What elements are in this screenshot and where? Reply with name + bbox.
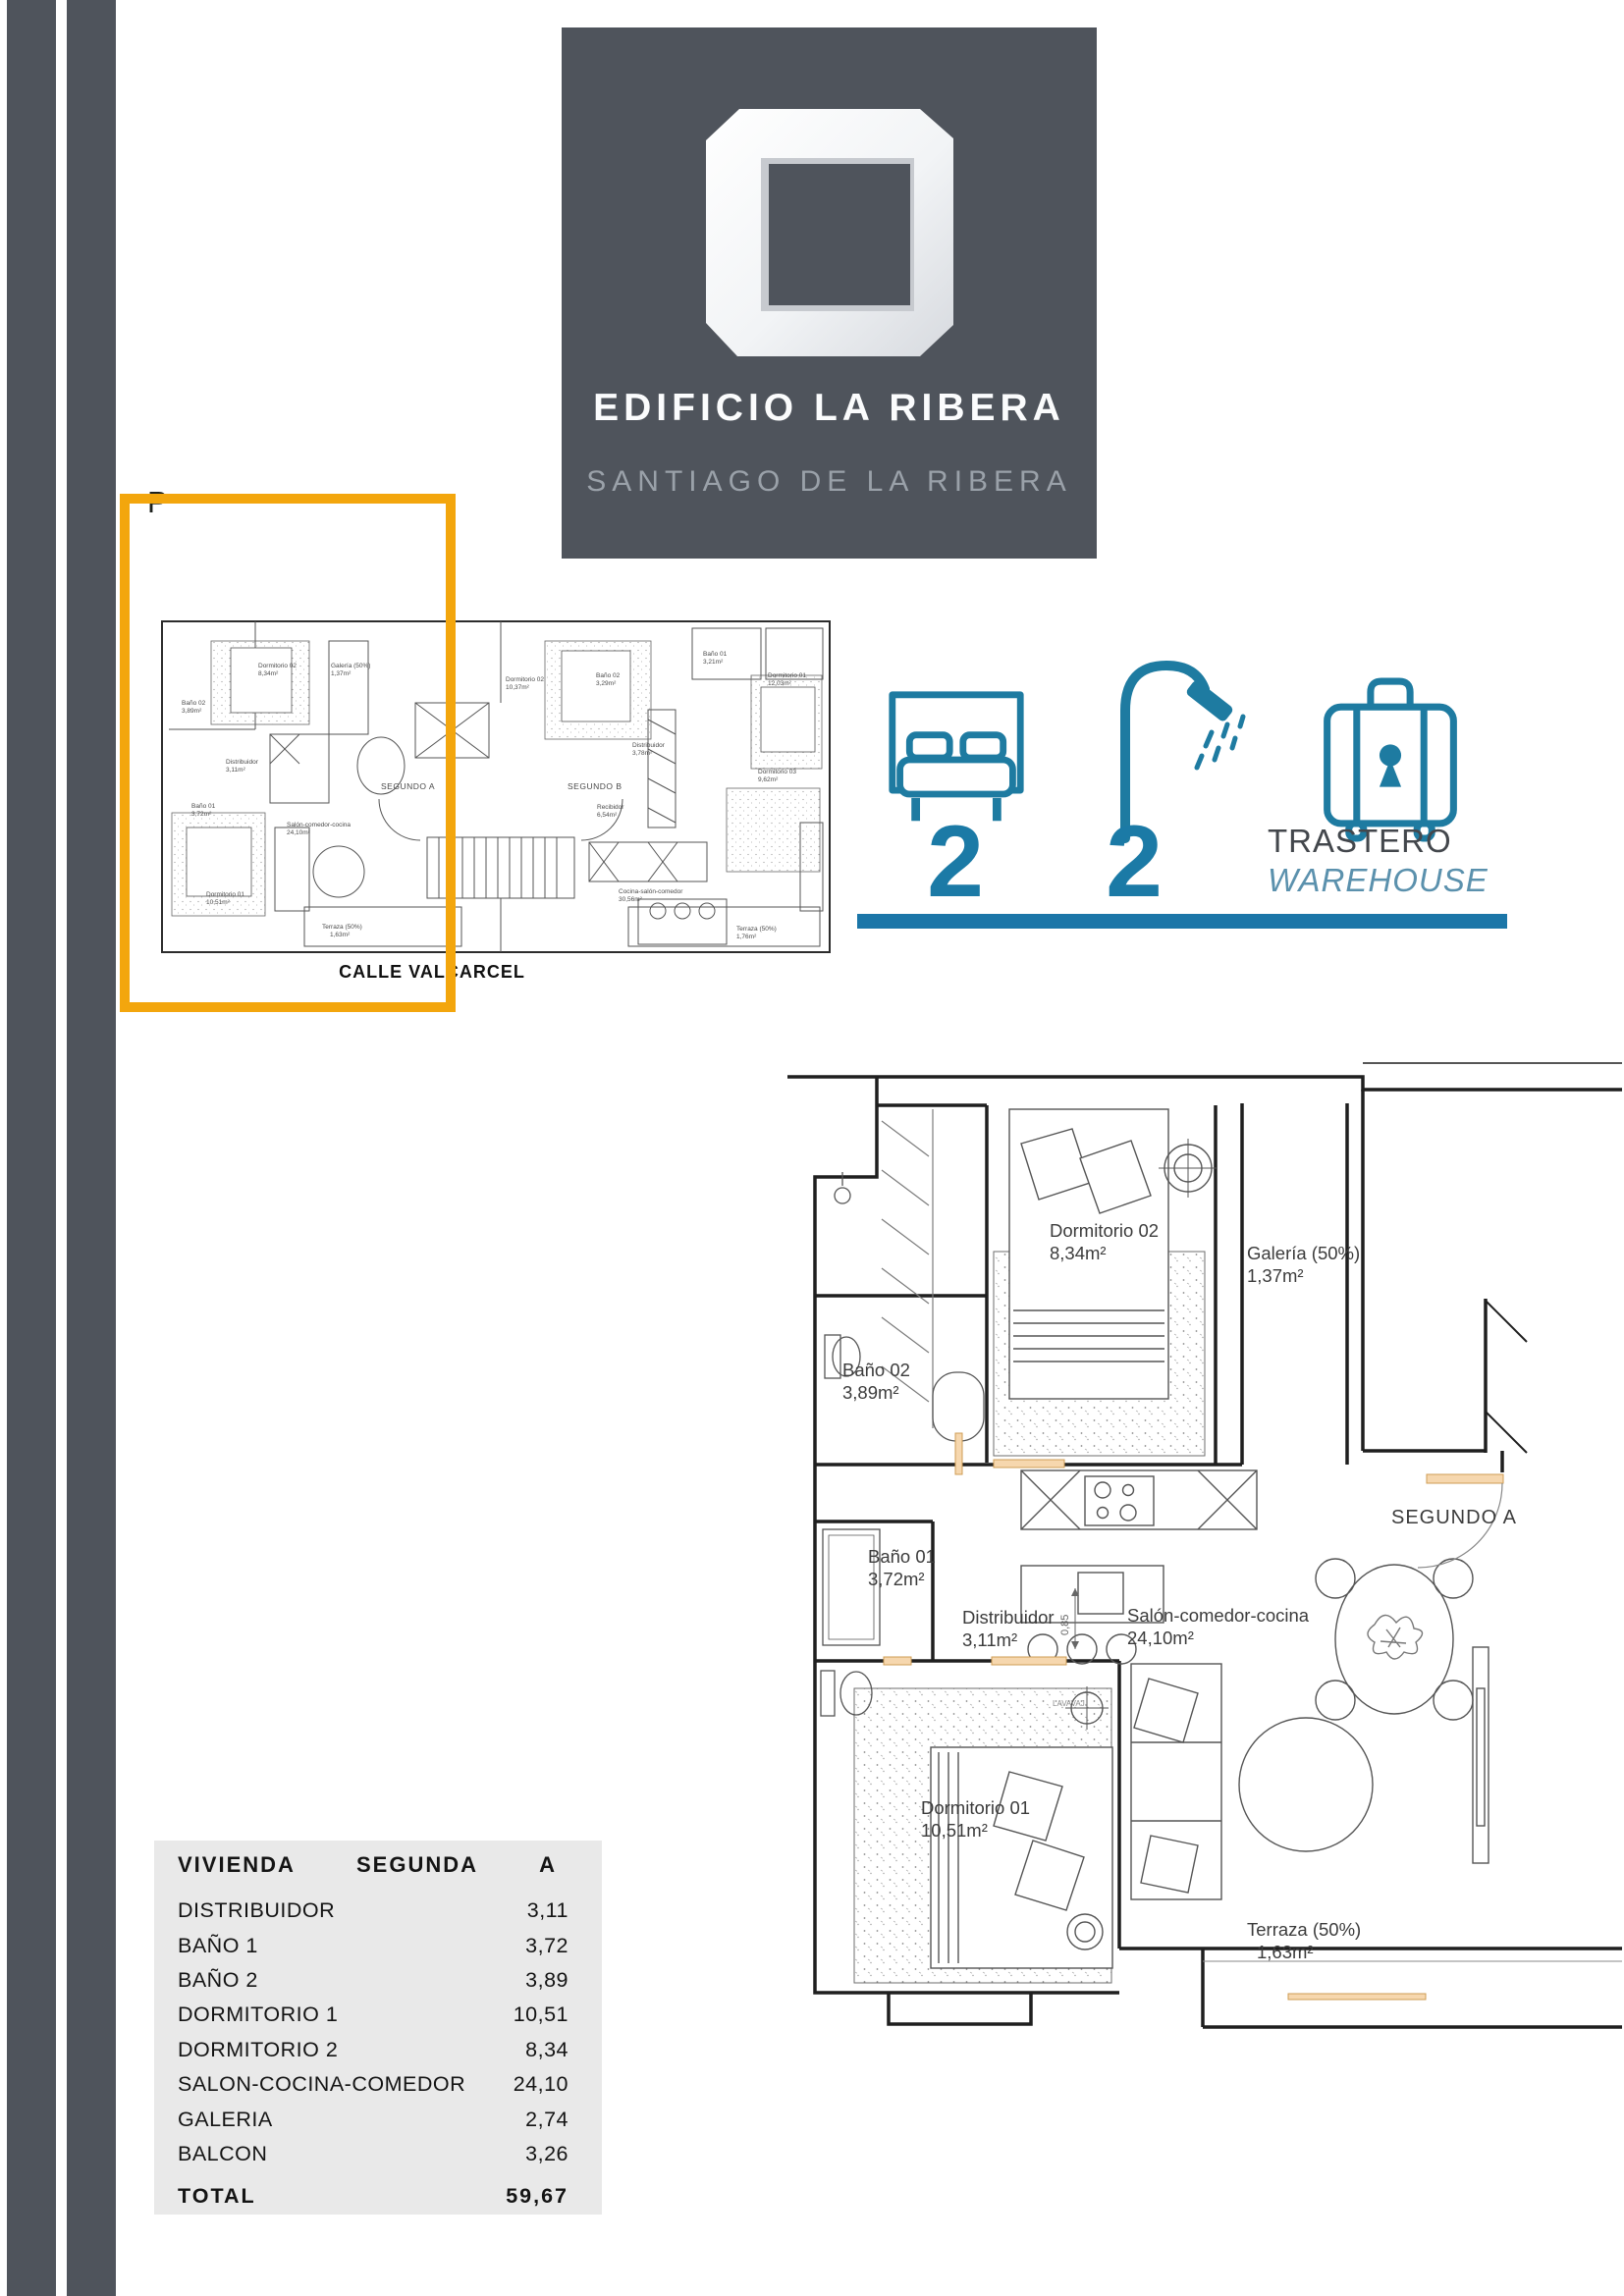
table-header-col2: SEGUNDA [356,1852,478,1882]
bathroom-count: 2 [1080,811,1188,913]
dimension-label: 0,85 [1059,1615,1071,1635]
svg-text:Distribuidor: Distribuidor [226,759,259,766]
svg-text:8,34m²: 8,34m² [258,670,279,677]
appliance-label: LAVAVAJ. [1053,1699,1087,1708]
svg-text:Terraza (50%): Terraza (50%) [736,926,777,933]
svg-text:10,51m²: 10,51m² [921,1820,988,1841]
page-letter: P [147,485,168,520]
svg-text:3,29m²: 3,29m² [596,680,617,687]
table-row: BALCON 3,26 [154,2137,602,2171]
svg-text:Baño 02: Baño 02 [842,1360,910,1380]
table-row: GALERIA 2,74 [154,2102,602,2136]
svg-text:Dormitorio 01: Dormitorio 01 [921,1797,1030,1818]
svg-text:Salón-comedor-cocina: Salón-comedor-cocina [287,822,351,828]
svg-text:10,37m²: 10,37m² [506,684,530,691]
table-row: SALON-COCINA-COMEDOR 24,10 [154,2067,602,2102]
svg-text:30,56m²: 30,56m² [619,896,643,903]
svg-text:Dormitorio 01: Dormitorio 01 [206,891,244,898]
svg-text:Recibidor: Recibidor [597,804,624,811]
table-row: DORMITORIO 2 8,34 [154,2033,602,2067]
svg-text:24,10m²: 24,10m² [287,829,311,836]
svg-text:1,63m²: 1,63m² [1257,1942,1314,1962]
svg-text:Baño 01: Baño 01 [703,651,728,658]
svg-text:1,63m²: 1,63m² [330,932,351,938]
svg-text:3,21m²: 3,21m² [703,659,724,666]
storage-label-es: TRASTERO [1268,823,1452,860]
svg-text:Dormitorio 02: Dormitorio 02 [506,676,544,683]
storage-label-en: WAREHOUSE [1268,862,1489,899]
brochure-page: P EDIFICIO LA RIBERA SANTIAGO DE LA RIBE… [0,0,1624,2296]
mini-unit-b-label: SEGUNDO B [568,781,623,791]
svg-text:3,72m²: 3,72m² [191,811,212,818]
svg-text:1,76m²: 1,76m² [736,934,757,940]
svg-text:3,11m²: 3,11m² [962,1629,1017,1650]
svg-text:6,54m²: 6,54m² [597,812,618,819]
svg-text:Terraza (50%): Terraza (50%) [322,924,362,931]
left-accent-bar [7,0,56,2296]
svg-text:3,72m²: 3,72m² [868,1569,925,1589]
svg-text:3,78m²: 3,78m² [632,750,653,757]
bedroom-count: 2 [901,811,1009,913]
suitcase-icon [1321,671,1460,844]
table-header: VIVIENDA SEGUNDA A [154,1852,602,1882]
building-title: EDIFICIO LA RIBERA [562,387,1097,430]
svg-text:Terraza (50%): Terraza (50%) [1247,1919,1361,1940]
svg-text:Baño 02: Baño 02 [596,672,621,679]
svg-text:1,37m²: 1,37m² [1247,1265,1304,1286]
left-accent-bar-2 [67,0,116,2296]
mini-unit-a-label: SEGUNDO A [381,781,435,791]
svg-text:12,03m²: 12,03m² [768,680,792,687]
area-summary-table: VIVIENDA SEGUNDA A DISTRIBUIDOR 3,11 BAÑ… [154,1841,602,2215]
svg-text:3,89m²: 3,89m² [182,708,202,715]
svg-text:Dormitorio 03: Dormitorio 03 [758,769,796,775]
svg-text:1,37m²: 1,37m² [331,670,352,677]
svg-text:Dormitorio 02: Dormitorio 02 [258,663,297,669]
building-subtitle: SANTIAGO DE LA RIBERA [562,465,1097,499]
svg-text:Salón-comedor-cocina: Salón-comedor-cocina [1127,1605,1310,1626]
svg-text:9,62m²: 9,62m² [758,776,779,783]
svg-text:Dormitorio 01: Dormitorio 01 [768,672,806,679]
table-row: DISTRIBUIDOR 3,11 [154,1894,602,1928]
svg-text:Baño 01: Baño 01 [191,803,216,810]
features-underline [857,914,1507,929]
table-total-row: TOTAL 59,67 [154,2179,602,2214]
svg-text:10,51m²: 10,51m² [206,899,231,906]
unit-a-floorplan: 0,85 LAVAVAJ. Dormitorio 02 8,34m² Galer… [785,1060,1624,2032]
table-row: DORMITORIO 1 10,51 [154,1998,602,2032]
svg-text:24,10m²: 24,10m² [1127,1628,1194,1648]
open-cube-logo-icon [704,106,955,359]
table-row: BAÑO 2 3,89 [154,1963,602,1998]
svg-text:Cocina-salón-comedor: Cocina-salón-comedor [619,888,683,895]
svg-text:3,11m²: 3,11m² [226,767,246,774]
street-label: CALLE VALCARCEL [295,962,569,983]
svg-text:Distribuidor: Distribuidor [632,742,666,749]
svg-text:Distribuidor: Distribuidor [962,1607,1055,1628]
svg-text:Baño 01: Baño 01 [868,1546,936,1567]
svg-text:8,34m²: 8,34m² [1050,1243,1107,1263]
svg-text:3,89m²: 3,89m² [842,1382,899,1403]
table-row: BAÑO 1 3,72 [154,1928,602,1962]
svg-text:Dormitorio 02: Dormitorio 02 [1050,1220,1159,1241]
table-header-col3: A [539,1852,557,1882]
table-header-col1: VIVIENDA [178,1852,296,1882]
svg-text:Baño 02: Baño 02 [182,700,206,707]
unit-label: SEGUNDO A [1391,1507,1517,1528]
svg-text:Galería (50%): Galería (50%) [1247,1243,1360,1263]
svg-text:Galería (50%): Galería (50%) [331,663,370,669]
brand-header: EDIFICIO LA RIBERA SANTIAGO DE LA RIBERA [562,27,1097,559]
overview-floorplan: Dormitorio 02 8,34m² Galería (50%) 1,37m… [157,616,835,960]
